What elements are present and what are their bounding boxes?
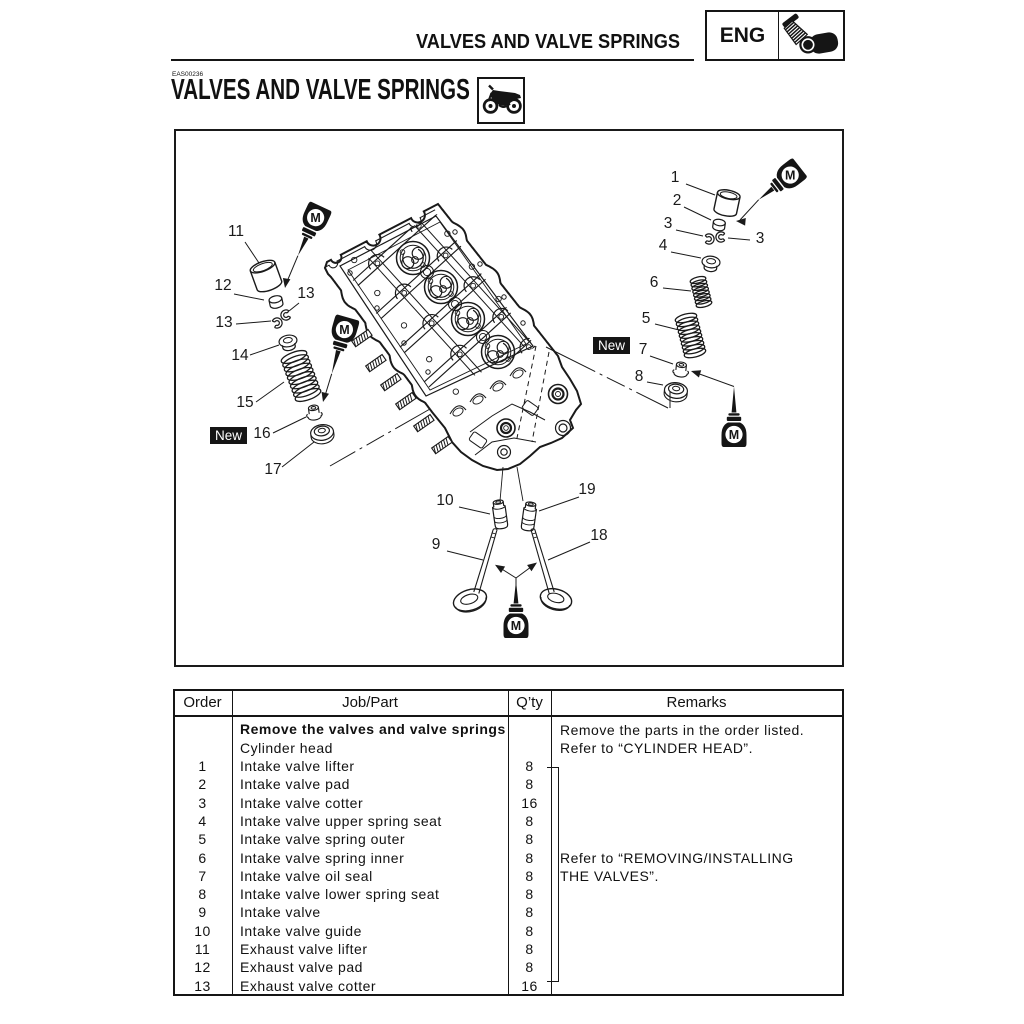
svg-text:M: M xyxy=(511,619,521,633)
svg-text:6: 6 xyxy=(650,274,659,291)
svg-text:17: 17 xyxy=(264,461,281,478)
svg-text:M: M xyxy=(785,169,795,183)
svg-text:3: 3 xyxy=(756,230,765,247)
svg-text:12: 12 xyxy=(214,277,231,294)
svg-text:8: 8 xyxy=(635,368,644,385)
svg-text:4: 4 xyxy=(659,237,668,254)
svg-text:10: 10 xyxy=(436,492,454,509)
svg-text:13: 13 xyxy=(215,314,232,331)
svg-text:1: 1 xyxy=(671,169,680,186)
svg-text:3: 3 xyxy=(664,215,673,232)
svg-text:14: 14 xyxy=(231,347,249,364)
svg-text:New: New xyxy=(215,428,242,443)
svg-text:5: 5 xyxy=(642,310,651,327)
svg-text:7: 7 xyxy=(639,341,648,358)
svg-text:15: 15 xyxy=(236,394,253,411)
svg-text:13: 13 xyxy=(297,285,314,302)
svg-text:M: M xyxy=(729,428,739,442)
svg-text:18: 18 xyxy=(590,527,607,544)
svg-text:9: 9 xyxy=(432,536,441,553)
svg-text:11: 11 xyxy=(228,223,244,240)
svg-text:New: New xyxy=(598,338,625,353)
svg-text:2: 2 xyxy=(673,192,682,209)
svg-text:16: 16 xyxy=(253,425,270,442)
svg-text:M: M xyxy=(339,323,349,337)
svg-text:M: M xyxy=(310,211,320,225)
svg-text:19: 19 xyxy=(578,481,595,498)
